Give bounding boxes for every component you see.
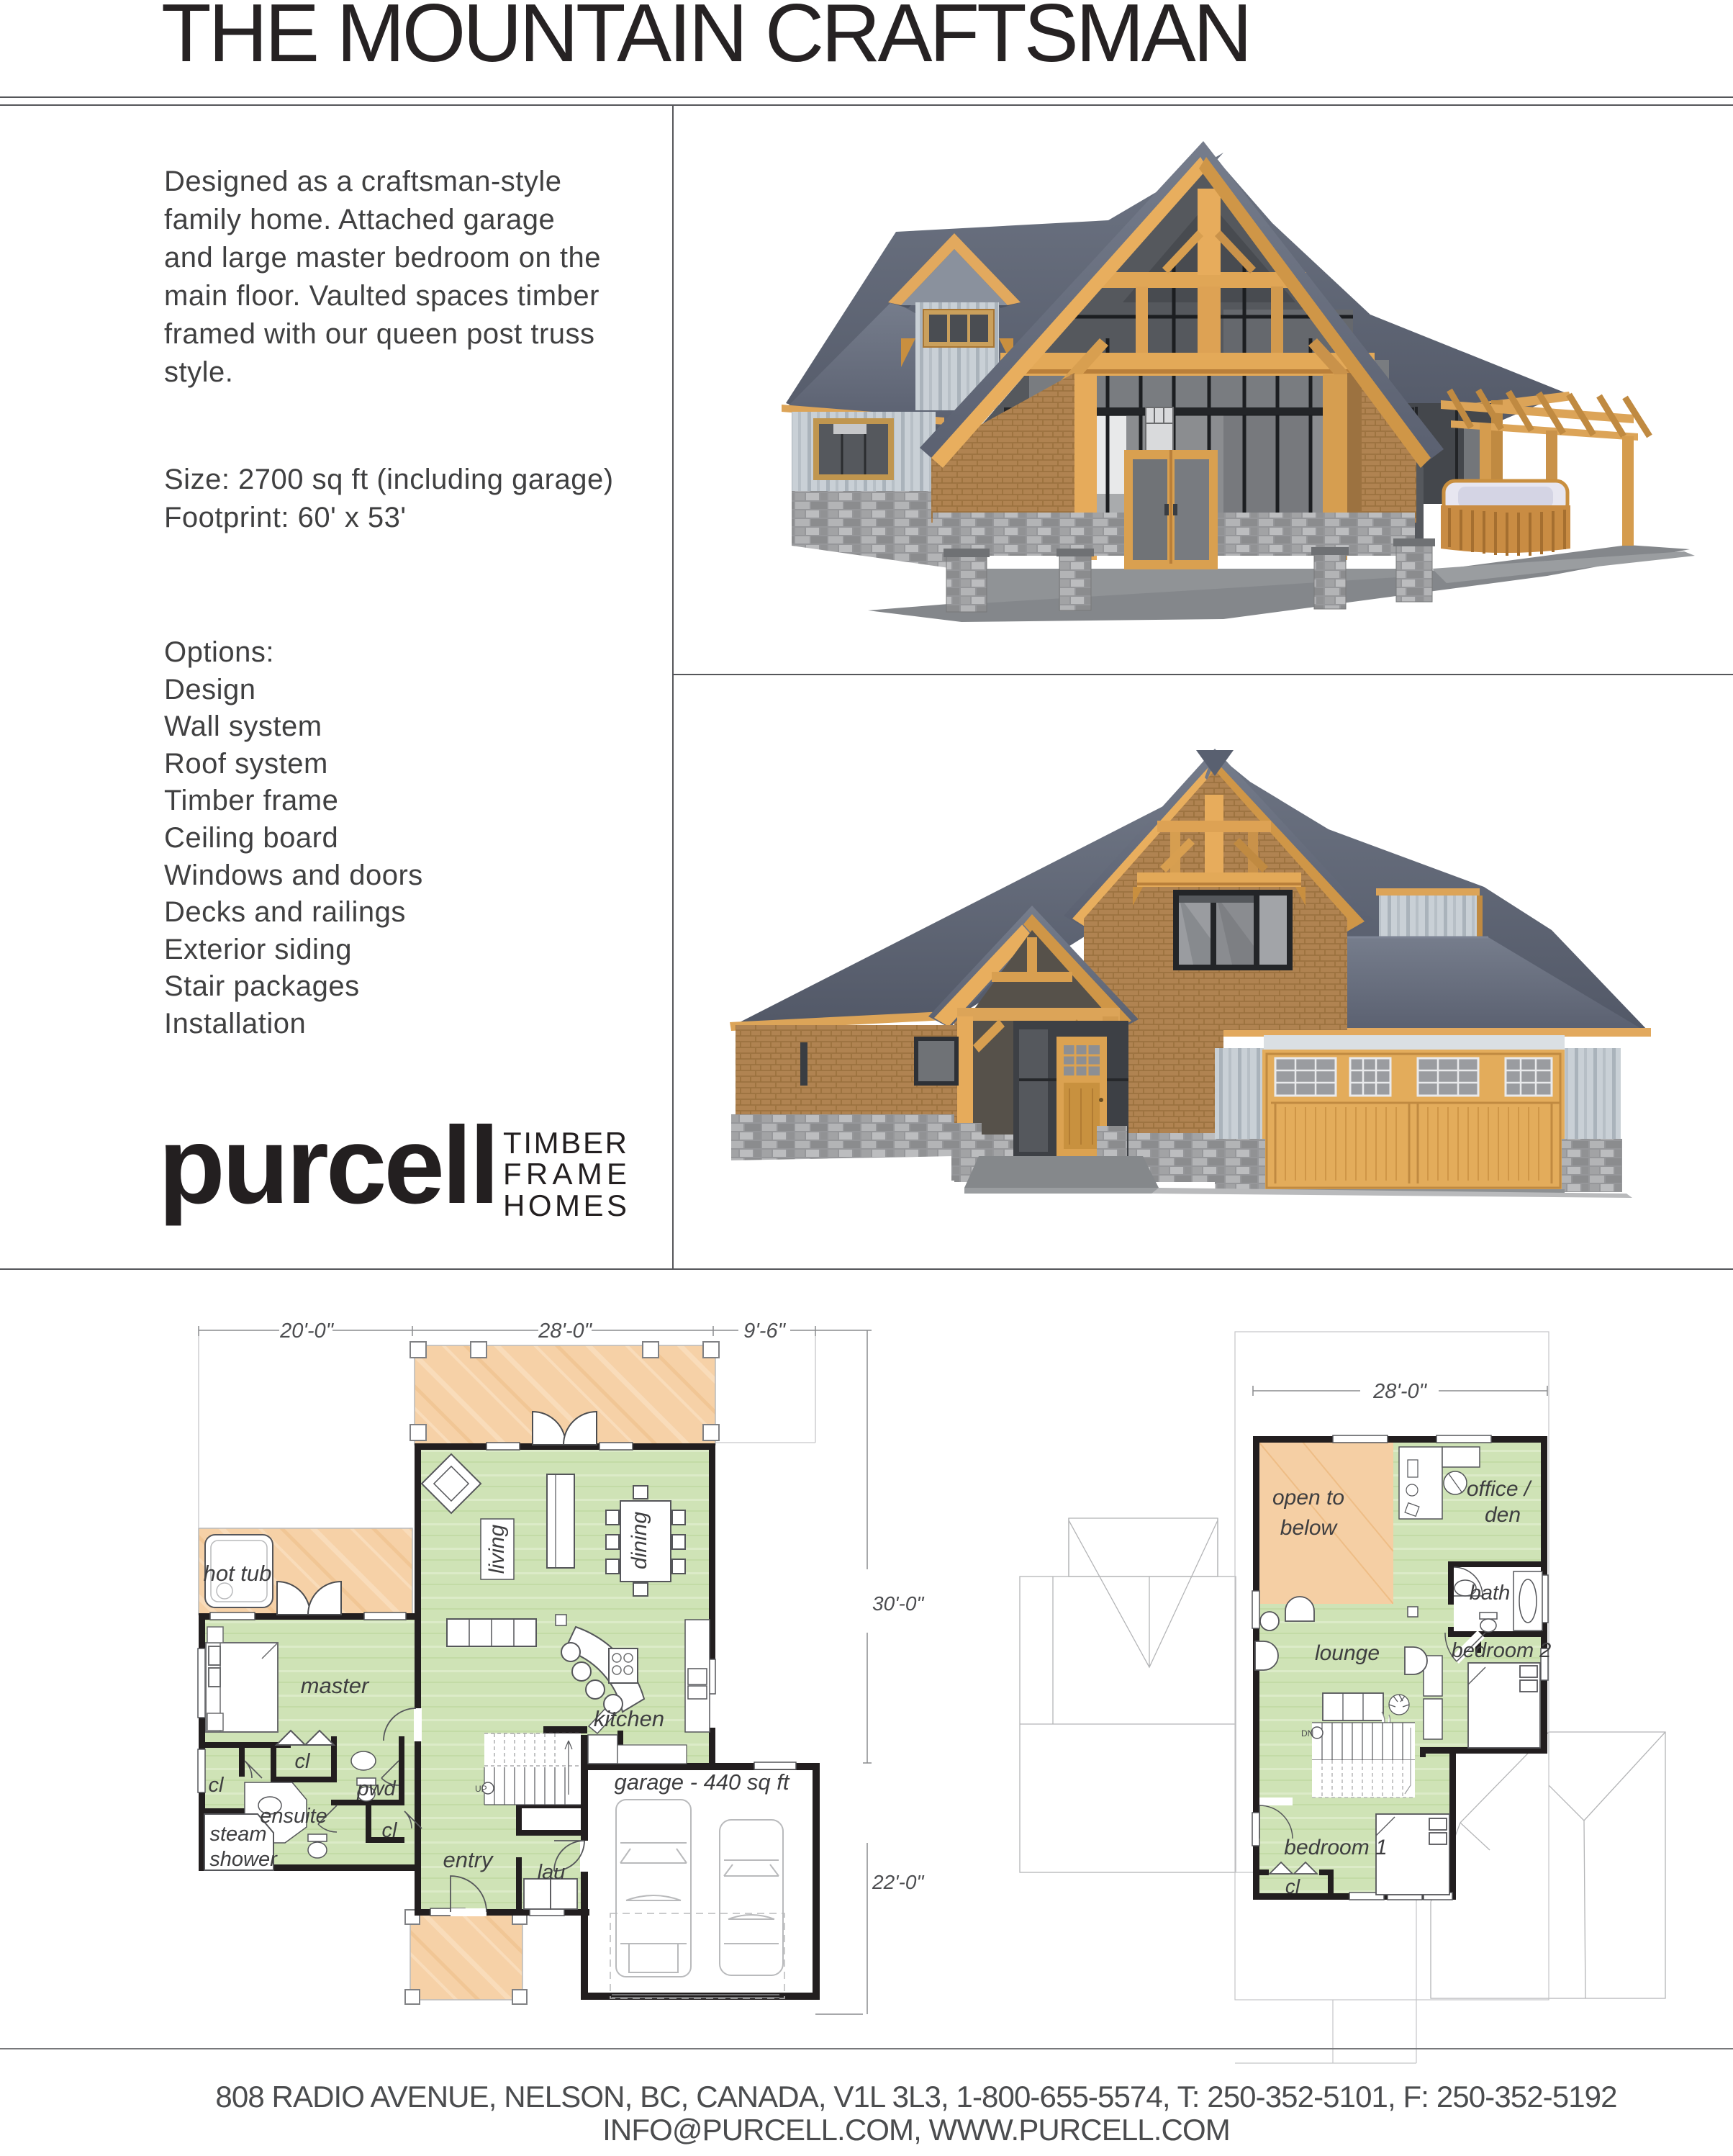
svg-text:shower: shower xyxy=(209,1848,278,1871)
svg-text:22'-0": 22'-0" xyxy=(872,1871,924,1893)
svg-text:DN: DN xyxy=(1301,1728,1313,1738)
svg-text:ensuite: ensuite xyxy=(260,1805,327,1828)
svg-text:below: below xyxy=(1280,1516,1339,1540)
svg-text:30'-0": 30'-0" xyxy=(872,1592,924,1615)
svg-text:cl: cl xyxy=(382,1819,399,1842)
svg-text:dining: dining xyxy=(628,1512,651,1569)
svg-text:cl: cl xyxy=(209,1774,225,1797)
svg-text:28'-0": 28'-0" xyxy=(538,1320,593,1343)
svg-text:master: master xyxy=(301,1673,370,1698)
svg-text:lau: lau xyxy=(538,1861,566,1884)
svg-text:kitchen: kitchen xyxy=(594,1706,664,1731)
svg-text:den: den xyxy=(1485,1503,1521,1527)
svg-text:garage - 440 sq ft: garage - 440 sq ft xyxy=(615,1769,790,1795)
svg-text:open to: open to xyxy=(1272,1486,1344,1510)
svg-text:9'-6": 9'-6" xyxy=(743,1320,786,1343)
svg-text:lounge: lounge xyxy=(1315,1641,1380,1665)
svg-text:bedroom 2: bedroom 2 xyxy=(1452,1639,1552,1662)
svg-text:cl: cl xyxy=(1285,1875,1300,1898)
svg-text:office /: office / xyxy=(1467,1477,1532,1501)
svg-text:bedroom 1: bedroom 1 xyxy=(1284,1836,1387,1859)
svg-text:cl: cl xyxy=(295,1750,312,1773)
svg-text:bath: bath xyxy=(1470,1582,1510,1605)
svg-text:28'-0": 28'-0" xyxy=(1372,1380,1428,1403)
svg-text:hot tub: hot tub xyxy=(204,1561,272,1586)
svg-text:living: living xyxy=(485,1525,509,1574)
svg-text:entry: entry xyxy=(443,1847,494,1872)
svg-text:UP: UP xyxy=(475,1784,487,1794)
svg-text:20'-0": 20'-0" xyxy=(279,1320,335,1343)
svg-text:pwd: pwd xyxy=(356,1777,396,1800)
svg-text:steam: steam xyxy=(210,1823,267,1846)
